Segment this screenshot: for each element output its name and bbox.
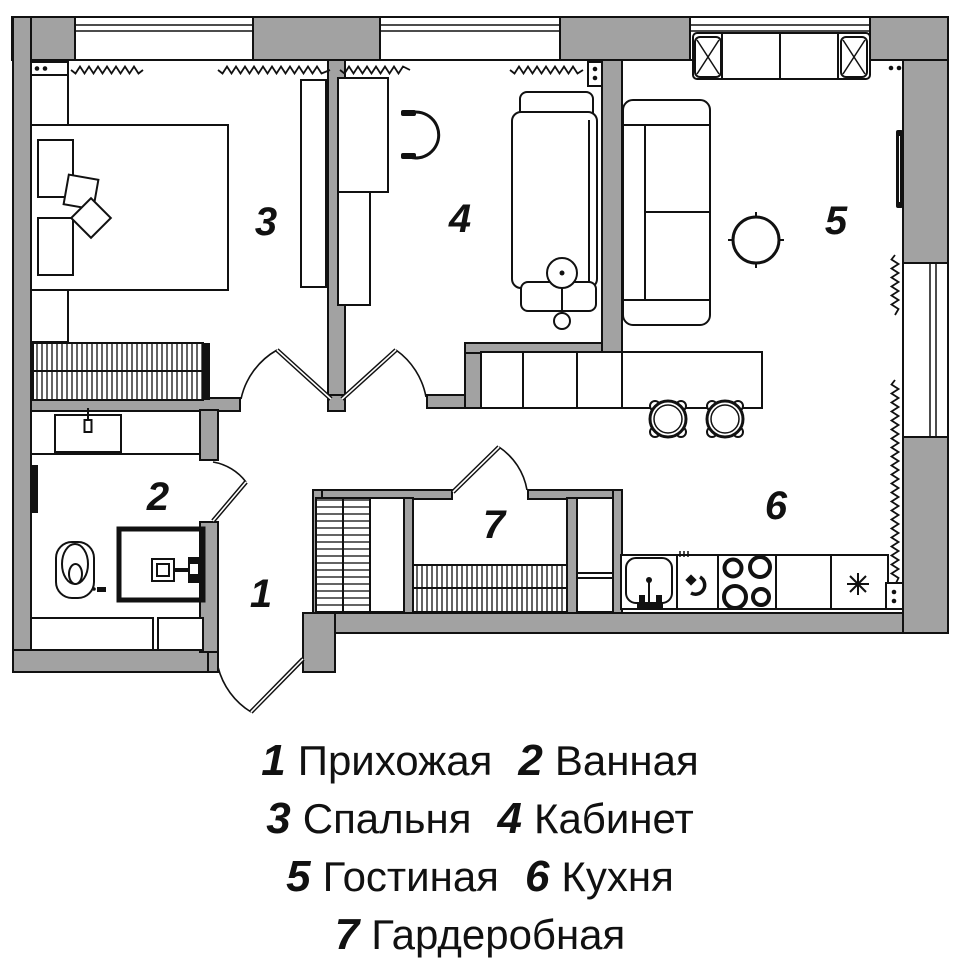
sofa-top <box>693 33 870 79</box>
legend-label: Гардеробная <box>371 911 625 959</box>
bar-stool <box>707 401 743 437</box>
mirror <box>31 465 38 513</box>
floorplan-page: 3 4 <box>0 0 960 960</box>
door-bathroom <box>213 462 246 521</box>
legend-label: Гостиная <box>323 853 499 901</box>
legend-row: 1 Прихожая 2 Ванная <box>261 736 698 786</box>
legend-label: Кухня <box>561 853 673 901</box>
legend-row: 5 Гостиная 6 Кухня <box>286 852 674 902</box>
door-wardrobe <box>453 447 527 492</box>
legend-item: 4 Кабинет <box>498 794 694 844</box>
vent-dots <box>889 66 902 71</box>
legend-label: Кабинет <box>534 795 694 843</box>
room-office: 4 <box>338 62 602 329</box>
door-office <box>342 350 426 399</box>
corner-sofa <box>623 100 710 325</box>
room-living: 5 <box>623 33 903 325</box>
door-entrance <box>218 659 303 712</box>
bedside-table <box>31 75 68 125</box>
room-number-bedroom: 3 <box>255 200 277 244</box>
bathroom-sink <box>55 408 121 452</box>
legend-item: 3 Спальня <box>266 794 471 844</box>
legend-item: 2 Ванная <box>518 736 698 786</box>
desk <box>338 78 388 305</box>
room-number-office: 4 <box>448 197 471 241</box>
window-office <box>380 17 560 60</box>
storage-cell <box>577 498 613 573</box>
vent-box <box>588 62 602 86</box>
room-number-hall: 1 <box>250 572 272 616</box>
legend-number: 3 <box>266 794 290 844</box>
floorplan-svg: 3 4 <box>0 0 960 718</box>
door-bedroom <box>241 350 331 399</box>
bedside-table <box>31 290 68 342</box>
tv <box>896 130 903 208</box>
shelving-unit <box>316 498 370 612</box>
room-bedroom: 3 <box>31 62 326 400</box>
legend-label: Ванная <box>555 737 699 785</box>
legend-number: 5 <box>286 852 310 902</box>
legend-number: 6 <box>525 852 549 902</box>
tall-cabinet <box>301 80 326 287</box>
vent-box <box>886 583 903 609</box>
legend-item: 5 Гостиная <box>286 852 499 902</box>
sofa-cushion-x <box>841 37 867 77</box>
legend-item: 7 Гардеробная <box>335 910 626 960</box>
legend-number: 4 <box>498 794 522 844</box>
room-number-living: 5 <box>825 199 848 243</box>
legend-label: Прихожая <box>298 737 493 785</box>
legend-number: 7 <box>335 910 359 960</box>
legend-item: 6 Кухня <box>525 852 674 902</box>
room-number-wardrobe: 7 <box>483 503 507 547</box>
legend-label: Спальня <box>303 795 472 843</box>
wardrobe <box>33 343 210 400</box>
storage-cell <box>577 578 613 612</box>
hanging-rail <box>413 565 567 612</box>
office-chair <box>401 110 439 159</box>
cabinet-row <box>481 352 622 408</box>
duct-box <box>158 618 203 650</box>
storage-cell <box>370 498 404 612</box>
legend-row: 7 Гардеробная <box>335 910 626 960</box>
room-number-bathroom: 2 <box>146 475 169 519</box>
legend-number: 1 <box>261 736 285 786</box>
window-bedroom <box>75 17 253 60</box>
double-bed <box>31 125 228 290</box>
washing-machine <box>119 529 203 600</box>
vent-box <box>31 62 68 75</box>
kitchen-sink <box>626 558 672 608</box>
window-kitchen-side <box>903 263 948 437</box>
sofa-cushion-x <box>695 37 721 77</box>
legend-row: 3 Спальня 4 Кабинет <box>266 794 693 844</box>
coffee-table <box>728 212 784 268</box>
toilet <box>56 542 106 598</box>
room-kitchen: 6 <box>621 484 903 609</box>
duct-box <box>31 618 153 650</box>
legend: 1 Прихожая 2 Ванная 3 Спальня 4 Кабинет … <box>0 736 960 960</box>
legend-number: 2 <box>518 736 542 786</box>
fridge-asterisk <box>847 573 869 595</box>
bar-stool <box>650 401 686 437</box>
legend-item: 1 Прихожая <box>261 736 492 786</box>
room-bathroom: 2 <box>31 408 203 650</box>
room-number-kitchen: 6 <box>765 484 788 528</box>
bar-counter <box>622 352 762 408</box>
